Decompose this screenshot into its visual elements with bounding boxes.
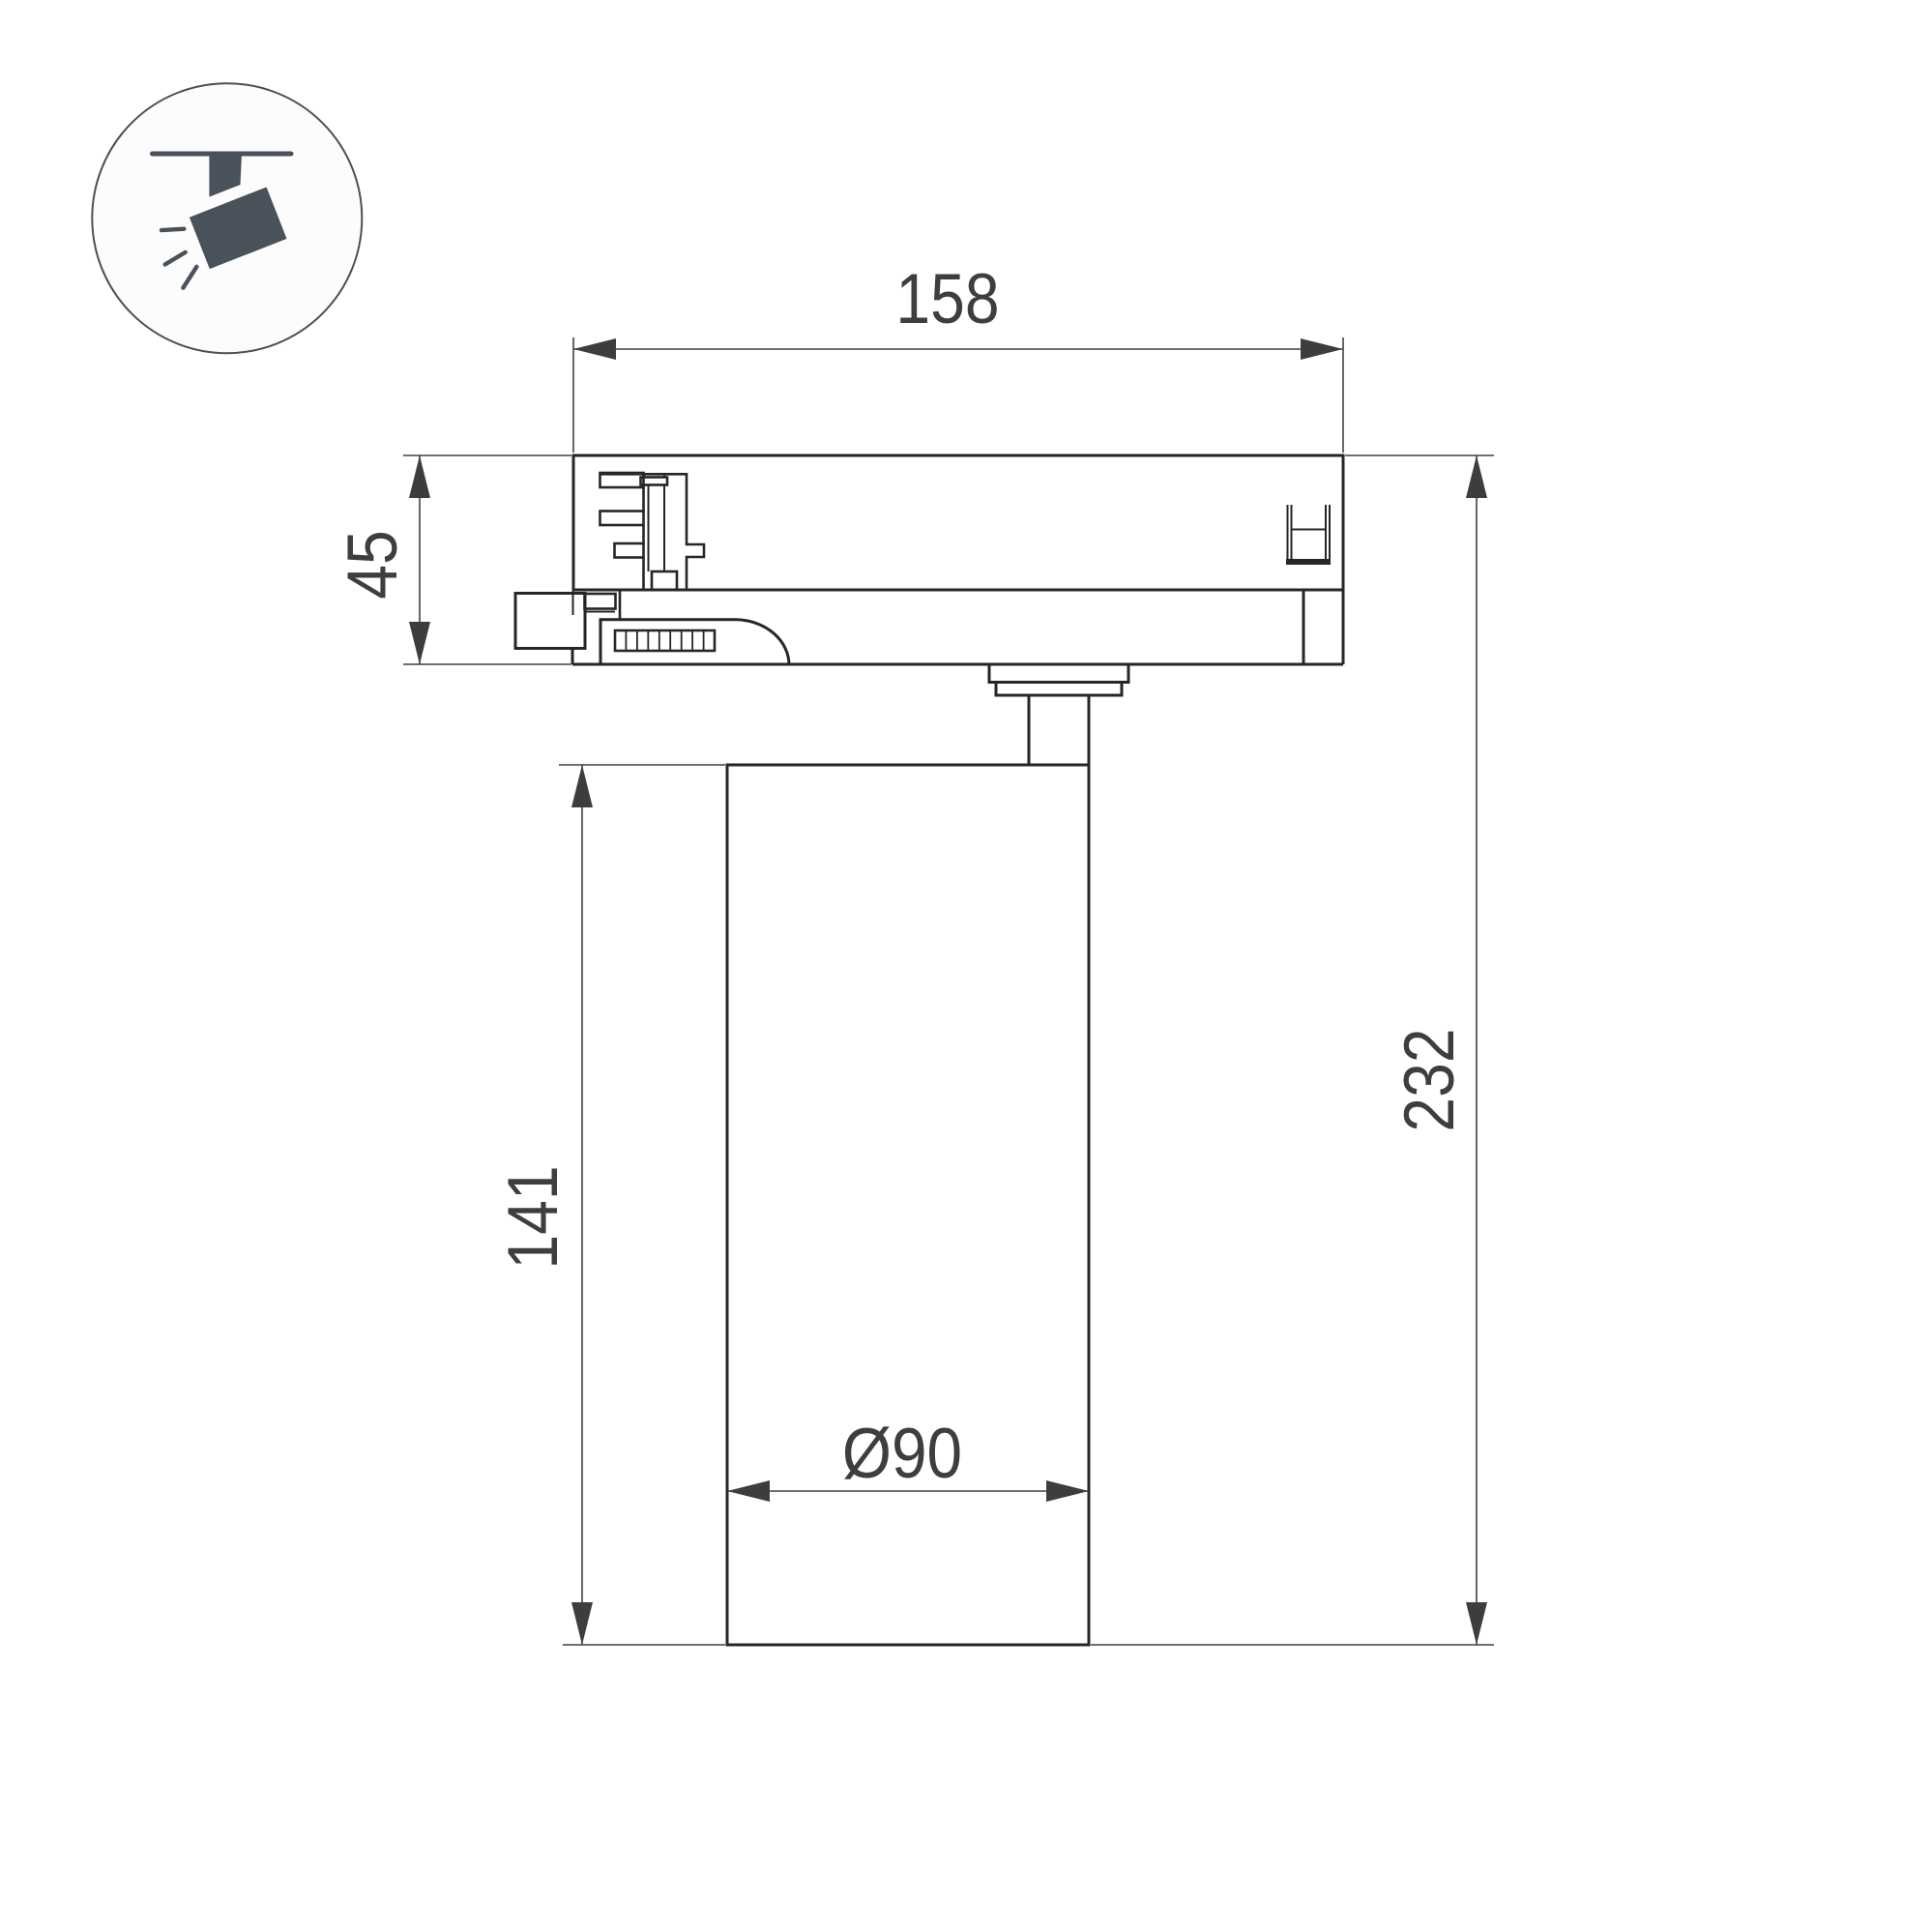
svg-text:232: 232 <box>1390 1028 1469 1131</box>
svg-text:158: 158 <box>895 259 999 338</box>
svg-text:45: 45 <box>333 530 412 599</box>
svg-text:141: 141 <box>493 1165 572 1269</box>
svg-text:Ø90: Ø90 <box>842 1414 962 1493</box>
